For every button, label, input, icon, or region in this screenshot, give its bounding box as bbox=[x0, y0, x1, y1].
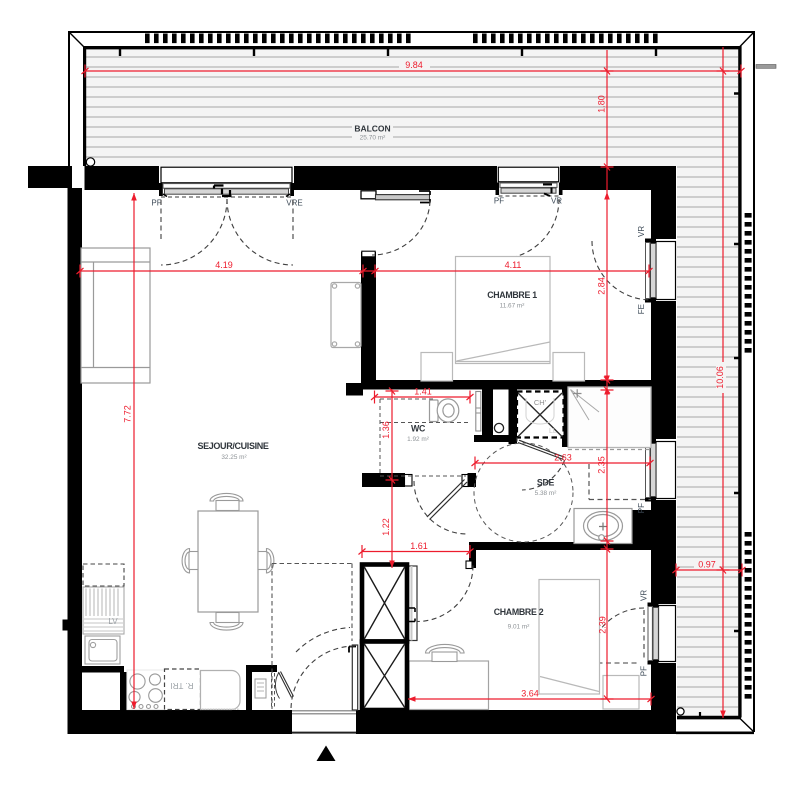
svg-text:9.84: 9.84 bbox=[405, 60, 423, 70]
svg-text:1.41: 1.41 bbox=[414, 387, 432, 397]
svg-text:2.84: 2.84 bbox=[596, 277, 606, 295]
svg-text:1.61: 1.61 bbox=[410, 541, 428, 551]
svg-text:1.80: 1.80 bbox=[596, 95, 606, 113]
svg-text:1.22: 1.22 bbox=[381, 518, 391, 536]
svg-text:CH': CH' bbox=[534, 398, 547, 407]
svg-text:2.39: 2.39 bbox=[597, 616, 607, 634]
svg-text:CHAMBRE 2: CHAMBRE 2 bbox=[494, 607, 544, 617]
svg-text:0.97: 0.97 bbox=[698, 560, 716, 570]
svg-text:PF: PF bbox=[151, 199, 161, 208]
svg-text:10.06: 10.06 bbox=[715, 366, 725, 389]
svg-text:BALCON: BALCON bbox=[354, 124, 390, 134]
svg-text:1.36: 1.36 bbox=[381, 421, 391, 439]
svg-text:3.64: 3.64 bbox=[521, 689, 539, 699]
svg-text:4.19: 4.19 bbox=[215, 260, 233, 270]
svg-text:32.25 m²: 32.25 m² bbox=[221, 454, 246, 461]
svg-text:LL: LL bbox=[549, 428, 557, 435]
svg-text:LV: LV bbox=[108, 617, 118, 626]
svg-text:2.35: 2.35 bbox=[596, 456, 606, 474]
svg-text:2.63: 2.63 bbox=[554, 453, 572, 463]
svg-text:VR: VR bbox=[640, 590, 649, 601]
svg-text:R. TRI: R. TRI bbox=[171, 681, 194, 690]
svg-text:CHAMBRE 1: CHAMBRE 1 bbox=[487, 290, 537, 300]
svg-text:FE: FE bbox=[637, 304, 646, 314]
svg-text:5.38 m²: 5.38 m² bbox=[535, 490, 557, 497]
svg-text:4.11: 4.11 bbox=[505, 260, 522, 270]
svg-text:11.67 m²: 11.67 m² bbox=[500, 303, 525, 310]
svg-text:PF: PF bbox=[494, 197, 504, 206]
svg-text:WC: WC bbox=[411, 424, 426, 434]
svg-text:1.92 m²: 1.92 m² bbox=[407, 436, 429, 443]
svg-text:SDE: SDE bbox=[537, 478, 555, 488]
svg-text:PF: PF bbox=[640, 666, 649, 676]
svg-text:VR: VR bbox=[551, 197, 562, 206]
svg-text:9.01 m²: 9.01 m² bbox=[508, 624, 530, 631]
svg-text:PF: PF bbox=[637, 503, 646, 513]
svg-text:VRE: VRE bbox=[286, 199, 302, 208]
svg-text:7.72: 7.72 bbox=[122, 405, 132, 423]
svg-text:25.70 m²: 25.70 m² bbox=[360, 135, 386, 142]
svg-text:VR: VR bbox=[637, 226, 646, 237]
svg-text:SEJOUR/CUISINE: SEJOUR/CUISINE bbox=[197, 441, 268, 451]
